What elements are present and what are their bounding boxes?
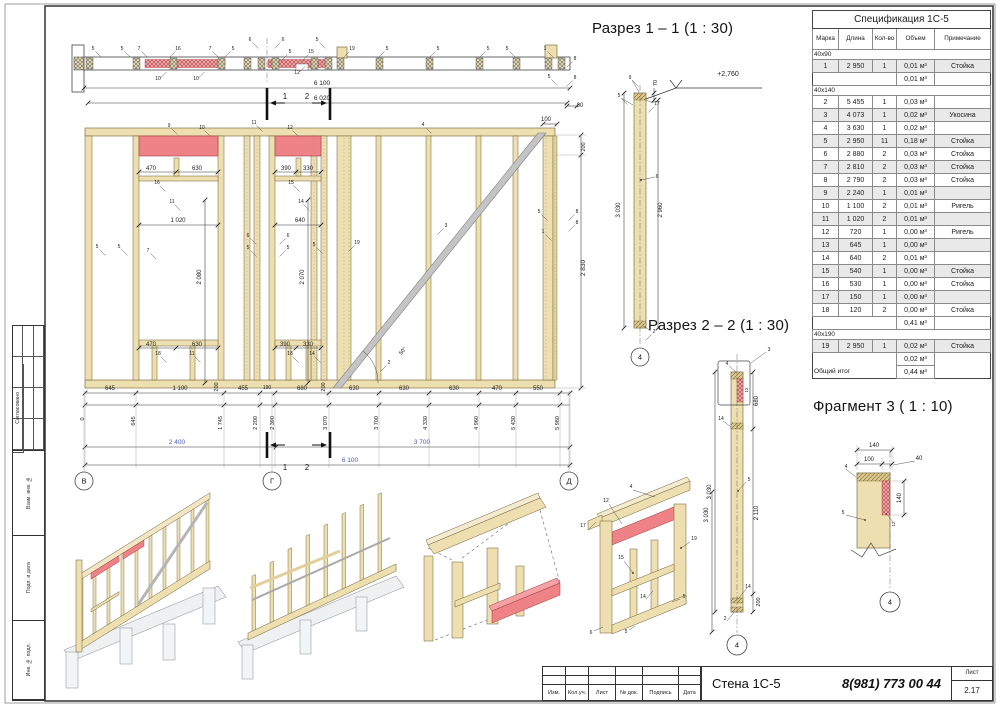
spec-cell: 0,00 м³ [897, 278, 935, 291]
spec-cell: Стойка [935, 304, 991, 317]
dim-label: 2 [724, 616, 727, 622]
spec-cell: 0,01 м³ [897, 187, 935, 200]
bubble-label: 4 [638, 353, 642, 362]
spec-cell: 2 950 [839, 340, 873, 353]
spec-cell: 10 [813, 200, 839, 213]
dim-label: 200 [581, 142, 587, 151]
dim-label: 5 [748, 477, 751, 483]
dim-label: 3 [768, 347, 771, 353]
dim-label: 11 [169, 199, 174, 205]
section-2-2-title: Разрез 2 – 2 (1 : 30) [648, 317, 789, 334]
spec-cell: 530 [839, 278, 873, 291]
spec-cell: 2 950 [839, 60, 873, 73]
dim-label: 14 [309, 351, 315, 357]
dim-label: 2 110 [754, 505, 760, 520]
spec-cell: 2 240 [839, 187, 873, 200]
dim-label: 390 [280, 342, 291, 348]
dim-label: 6 [249, 37, 252, 43]
dim-label: 10 [199, 125, 205, 131]
bubble-label: 4 [735, 641, 739, 650]
spec-cell: 0,01 м³ [897, 73, 935, 86]
spec-cell: 1 100 [839, 200, 873, 213]
dim-label: 390 [281, 166, 292, 172]
spec-cell: 2 790 [839, 174, 873, 187]
dim-label: 5 [386, 46, 389, 52]
spec-cell: 0,01 м³ [897, 200, 935, 213]
grid-bubble: 4 [727, 635, 747, 655]
spec-cell [935, 73, 991, 86]
dim-label: 2 080 [197, 269, 203, 285]
iso-stage-g [238, 486, 404, 679]
spec-cell: 1 [873, 60, 897, 73]
spec-cell: 12 [813, 226, 839, 239]
dim-label: 5 [96, 244, 99, 250]
spec-cell [813, 353, 897, 366]
dim-label: 5 980 [555, 416, 561, 430]
spec-cell: Стойка [935, 265, 991, 278]
spec-cell: 640 [839, 252, 873, 265]
dim-label: 50° [398, 346, 408, 356]
dim-label: 6 [247, 233, 250, 239]
dim-label: 200 [321, 382, 327, 391]
stamp-box: Подп. и дата [13, 536, 44, 621]
spec-row: 43 63010,02 м³ [813, 122, 991, 135]
spec-cell [813, 73, 897, 86]
dim-label: 14 [298, 199, 304, 205]
dim-label: 5 [313, 242, 316, 248]
spec-cell: 3 [813, 109, 839, 122]
spec-cell: 2 [873, 304, 897, 317]
dim-label: 5 [287, 245, 290, 251]
dim-label: 12 [891, 521, 896, 527]
spec-cell: Кол-во [873, 29, 897, 50]
dim-label: 680 [754, 395, 760, 406]
spec-row: 82 79020,03 м³Стойка [813, 174, 991, 187]
section-1-1-title: Разрез 1 – 1 (1 : 30) [592, 20, 733, 37]
spec-cell: Ригель [935, 226, 991, 239]
spec-cell: 0,01 м³ [897, 60, 935, 73]
phone-number: 8(981) 773 00 44 [842, 676, 941, 691]
dim-label: 140 [869, 443, 880, 449]
spec-cell: 1 [873, 278, 897, 291]
spec-cell: 18 [813, 304, 839, 317]
dim-label: 15 [618, 555, 624, 561]
spec-cell [935, 239, 991, 252]
dim-label: 9 [168, 123, 171, 129]
spec-cell [813, 317, 897, 330]
spec-row: 1464020,01 м³ [813, 252, 991, 265]
dim-label: 5 [118, 244, 121, 250]
dim-label: 2 [305, 463, 310, 472]
spec-cell: 0,01 м³ [897, 252, 935, 265]
dim-label: 12 [294, 70, 300, 76]
spec-cell: Стойка [935, 148, 991, 161]
spec-cell: Укосина [935, 109, 991, 122]
spec-row: 1364510,00 м³ [813, 239, 991, 252]
stamp-cell [23, 419, 33, 450]
spec-cell: 2 880 [839, 148, 873, 161]
title-block: Изм.Кол.уч.Лист№ док.ПодписьДата Стена 1… [542, 666, 993, 701]
spec-cell: 0,03 м³ [897, 161, 935, 174]
spec-cell: 5 [813, 135, 839, 148]
dim-label: 630 [192, 166, 203, 172]
dim-label: 15 [288, 180, 294, 186]
spec-cell: 0,02 м³ [897, 122, 935, 135]
dim-label: 8 [574, 56, 577, 62]
dim-label: 5 [289, 49, 292, 55]
spec-row: 40х90 [813, 50, 991, 60]
spec-cell: 1 [813, 60, 839, 73]
dim-label: 645 [131, 416, 137, 425]
dim-label: 5 430 [511, 416, 517, 430]
spec-cell: 1 [873, 265, 897, 278]
dim-label: 2 070 [300, 269, 306, 285]
title-block-columns: Изм.Кол.уч.Лист№ док.ПодписьДата [543, 667, 702, 700]
spec-cell: 1 [873, 291, 897, 304]
dim-label: 2 [305, 92, 310, 101]
spec-cell: 1 [873, 187, 897, 200]
stamp-cell [13, 326, 23, 357]
spec-cell: Стойка [935, 340, 991, 353]
stamp-cell [34, 388, 44, 419]
spec-cell: 0,18 м³ [897, 135, 935, 148]
dim-label: 2 [388, 360, 391, 366]
spec-cell: 0,02 м³ [897, 109, 935, 122]
spec-cell: 2 810 [839, 161, 873, 174]
stamp-cell [34, 326, 44, 357]
dim-label: 2 400 [169, 439, 186, 446]
spec-cell: 2 [873, 200, 897, 213]
title-block-col: Кол.уч. [566, 667, 589, 700]
dim-label: 470 [146, 342, 157, 348]
dim-label: 12 [744, 387, 749, 393]
dim-label: 15 [308, 49, 314, 55]
dim-label: 14 [718, 416, 724, 422]
dim-label: 3 700 [374, 416, 380, 430]
dim-label: 3 [445, 223, 448, 229]
spec-cell: 13 [813, 239, 839, 252]
spec-cell: 1 [873, 226, 897, 239]
spec-cell [935, 252, 991, 265]
spec-cell: 0,03 м³ [897, 148, 935, 161]
dim-label: 40 [916, 456, 923, 462]
spec-cell [935, 96, 991, 109]
dim-label: 11 [251, 120, 256, 126]
spec-row: 1554010,00 м³Стойка [813, 265, 991, 278]
dim-label: 140 [897, 492, 903, 503]
spec-cell: 40х140 [813, 86, 991, 96]
spec-row: 52 950110,18 м³Стойка [813, 135, 991, 148]
title-block-main: Стена 1С-5 8(981) 773 00 44 [702, 667, 952, 700]
dim-label: 6 020 [314, 95, 331, 102]
stamp-grid: Согласовано [13, 326, 44, 451]
spec-cell: 2 [873, 148, 897, 161]
spec-cell: 7 [813, 161, 839, 174]
spec-cell: Стойка [935, 60, 991, 73]
dim-label: 645 [105, 386, 116, 392]
stamp-cell [23, 388, 33, 419]
dim-label: 455 [238, 386, 249, 392]
dim-label: 680 [297, 386, 308, 392]
title-block-col: Подпись [643, 667, 679, 700]
spec-cell: 4 073 [839, 109, 873, 122]
dim-label: 5 [316, 37, 319, 43]
dim-label: 70 [653, 80, 659, 86]
dim-label: 5 [683, 594, 686, 600]
dim-label: 18 [155, 351, 161, 357]
spec-cell: 17 [813, 291, 839, 304]
stamp-cell [23, 326, 33, 357]
dim-label: 640 [295, 218, 306, 224]
dim-label: 4 [630, 484, 633, 490]
dim-label: 2 960 [658, 202, 664, 218]
iso-stage-v [64, 493, 226, 688]
spec-cell: Общий итог [813, 366, 897, 379]
dim-label: 6 100 [342, 457, 359, 464]
spec-row: 1715010,00 м³ [813, 291, 991, 304]
spec-cell: 14 [813, 252, 839, 265]
dim-label: +2,760 [717, 71, 739, 78]
spec-row: 72 81020,03 м³Стойка [813, 161, 991, 174]
stamp-cell [34, 419, 44, 450]
spec-row: 101 10020,01 м³Ригель [813, 200, 991, 213]
dim-label: 0 [80, 417, 86, 420]
spec-cell: 2 [873, 174, 897, 187]
dim-label: 5 [548, 74, 551, 80]
spec-cell: 0,03 м³ [897, 96, 935, 109]
spec-cell: 0,03 м³ [897, 174, 935, 187]
spec-cell: 0,41 м³ [897, 317, 935, 330]
spec-row: 40х140 [813, 86, 991, 96]
drawing-sheet: 557167566515519555518581010126 1006 0201… [0, 0, 1000, 707]
dim-label: 5 [618, 93, 621, 99]
dim-label: 17 [654, 101, 660, 107]
dim-label: 19 [354, 240, 360, 246]
dim-label: 5 [247, 245, 250, 251]
spec-cell [935, 366, 991, 379]
spec-cell: 5 455 [839, 96, 873, 109]
dim-label: 14 [745, 584, 751, 590]
spec-cell: Стойка [935, 278, 991, 291]
section-2-2-detail [718, 361, 750, 612]
specification-table: Спецификация 1С-5МаркаДлинаКол-воОбъемПр… [812, 10, 991, 379]
dim-label: 1 100 [172, 386, 188, 392]
dim-label: 550 [533, 386, 544, 392]
spec-cell: 2 [873, 161, 897, 174]
dim-label: 190 [263, 385, 272, 391]
dim-label: 9 [629, 75, 632, 81]
spec-row: 0,41 м³ [813, 317, 991, 330]
spec-cell: 40х90 [813, 50, 991, 60]
spec-cell: 0,01 м³ [897, 213, 935, 226]
dim-label: 3 030 [704, 507, 710, 523]
dim-label: 470 [146, 166, 157, 172]
spec-row: Общий итог0,44 м³ [813, 366, 991, 379]
dim-label: 11 [189, 351, 194, 357]
dim-label: 1 [283, 463, 288, 472]
spec-cell: 2 950 [839, 135, 873, 148]
dim-label: 200 [214, 382, 220, 391]
dim-label: 12 [287, 125, 293, 131]
title-block-col: Лист [589, 667, 616, 700]
dim-label: 630 [192, 342, 203, 348]
spec-cell: 11 [813, 213, 839, 226]
spec-row: 1272010,00 м³Ригель [813, 226, 991, 239]
dim-label: 630 [449, 386, 460, 392]
dim-label: 10 [193, 76, 199, 82]
dim-label: 1 [542, 229, 545, 235]
dim-label: 8 [574, 75, 577, 81]
spec-cell: 15 [813, 265, 839, 278]
dim-label: 3 030 [707, 484, 713, 500]
spec-cell [935, 187, 991, 200]
dim-label: 3 700 [414, 439, 431, 446]
dim-label: 18 [287, 351, 293, 357]
spec-cell [935, 317, 991, 330]
spec-cell: 0,00 м³ [897, 239, 935, 252]
spec-cell [935, 291, 991, 304]
dim-label: 330 [303, 342, 314, 348]
iso-exploded [424, 493, 560, 641]
dim-label: 1 [544, 46, 547, 52]
grid-bubble: 4 [880, 592, 900, 612]
sheet-number: 2.17 [952, 681, 992, 700]
dim-label: 80 [577, 103, 584, 109]
dim-label: 16 [175, 46, 181, 52]
sheet-number-box: Лист 2.17 [952, 667, 992, 700]
dim-label: 7 [209, 46, 212, 52]
dim-label: 1 020 [170, 218, 186, 224]
dim-label: 6 [656, 174, 659, 180]
spec-cell: 0,00 м³ [897, 265, 935, 278]
spec-row: 111 02020,01 м³ [813, 213, 991, 226]
dim-label: 5 [487, 46, 490, 52]
section-1-1-detail [634, 80, 762, 328]
grid-bubble: В [75, 472, 93, 490]
dim-label: 14 [640, 594, 646, 600]
dim-label: 5 [232, 46, 235, 52]
dim-label: 5 [625, 629, 628, 635]
spec-row: 62 88020,03 м³Стойка [813, 148, 991, 161]
spec-row: Спецификация 1С-5 [813, 11, 991, 29]
spec-cell: 0,02 м³ [897, 340, 935, 353]
spec-cell: 8 [813, 174, 839, 187]
spec-cell: 2 [873, 252, 897, 265]
grid-bubble: 4 [631, 348, 649, 366]
spec-cell: 150 [839, 291, 873, 304]
spec-cell: 11 [873, 135, 897, 148]
spec-cell: 1 [873, 340, 897, 353]
spec-cell: 540 [839, 265, 873, 278]
dim-label: 4 330 [423, 416, 429, 430]
dim-label: 630 [349, 386, 360, 392]
dim-label: 8 [576, 220, 579, 226]
stamp-cell [23, 357, 33, 388]
agreed-label: Согласовано [13, 364, 24, 453]
dim-label: 12 [603, 498, 609, 504]
spec-row: 0,01 м³ [813, 73, 991, 86]
spec-cell: 1 [873, 122, 897, 135]
dim-label: 4 [845, 464, 848, 470]
dim-label: 100 [864, 457, 875, 463]
fragment-3-title: Фрагмент 3 ( 1 : 10) [813, 398, 953, 415]
spec-cell: 40х190 [813, 330, 991, 340]
dim-label: 5 [121, 46, 124, 52]
dim-label: 6 [287, 233, 290, 239]
bubble-label: Д [566, 477, 571, 486]
iso-views [64, 477, 690, 688]
dim-label: 6 100 [314, 80, 331, 87]
dim-label: 4 [422, 122, 425, 128]
dim-label: 3 070 [323, 416, 329, 430]
dim-label: 19 [691, 536, 697, 542]
dim-label: 4 960 [474, 416, 480, 430]
dim-label: 5 [437, 46, 440, 52]
spec-row: 40х190 [813, 330, 991, 340]
dim-label: 330 [303, 166, 314, 172]
dim-label: 470 [492, 386, 503, 392]
spec-cell [935, 213, 991, 226]
spec-row: 1812020,00 м³Стойка [813, 304, 991, 317]
spec-row: 1653010,00 м³Стойка [813, 278, 991, 291]
spec-cell: 1 [873, 96, 897, 109]
dim-label: 17 [580, 523, 586, 529]
spec-cell: 16 [813, 278, 839, 291]
spec-row: 192 95010,02 м³Стойка [813, 340, 991, 353]
spec-cell: Ригель [935, 200, 991, 213]
spec-cell: 19 [813, 340, 839, 353]
spec-cell: 2 [873, 213, 897, 226]
spec-cell: 1 [873, 239, 897, 252]
dim-label: 8 [576, 209, 579, 215]
spec-cell: 0,00 м³ [897, 291, 935, 304]
spec-cell: 4 [813, 122, 839, 135]
spec-cell: 720 [839, 226, 873, 239]
grid-bubble: Д [560, 472, 578, 490]
dim-label: 2 390 [270, 416, 276, 430]
stamp-cell [34, 357, 44, 388]
dim-label: 630 [399, 386, 410, 392]
sheet-label: Лист [952, 667, 992, 681]
left-stamp: Согласовано Взам. инв. №Подп. и датаИнв.… [12, 325, 45, 701]
title-block-col: № док. [616, 667, 643, 700]
spec-cell: 3 630 [839, 122, 873, 135]
dim-label: 1 745 [218, 416, 224, 430]
spec-cell: Стойка [935, 161, 991, 174]
spec-cell: 6 [813, 148, 839, 161]
spec-cell: 2 [813, 96, 839, 109]
spec-cell: Примечание [935, 29, 991, 50]
dim-label: 5 [538, 209, 541, 215]
dim-label: 7 [147, 248, 150, 254]
spec-cell: Стойка [935, 174, 991, 187]
spec-cell: 1 020 [839, 213, 873, 226]
dim-label: 10 [155, 76, 161, 82]
spec-cell: 1 [873, 109, 897, 122]
spec-cell: 0,44 м³ [897, 366, 935, 379]
stamp-box: Взам. инв. № [13, 451, 44, 536]
bubble-label: 4 [888, 598, 892, 607]
dim-label: 3 030 [616, 202, 622, 218]
dim-label: 5 [92, 46, 95, 52]
title-block-col: Дата [679, 667, 701, 700]
spec-cell: Объем [897, 29, 935, 50]
dim-label: 6 [282, 37, 285, 43]
spec-cell: Стойка [935, 135, 991, 148]
doc-title: Стена 1С-5 [712, 676, 781, 691]
spec-row: МаркаДлинаКол-воОбъемПримечание [813, 29, 991, 50]
dim-label: 19 [349, 46, 355, 52]
